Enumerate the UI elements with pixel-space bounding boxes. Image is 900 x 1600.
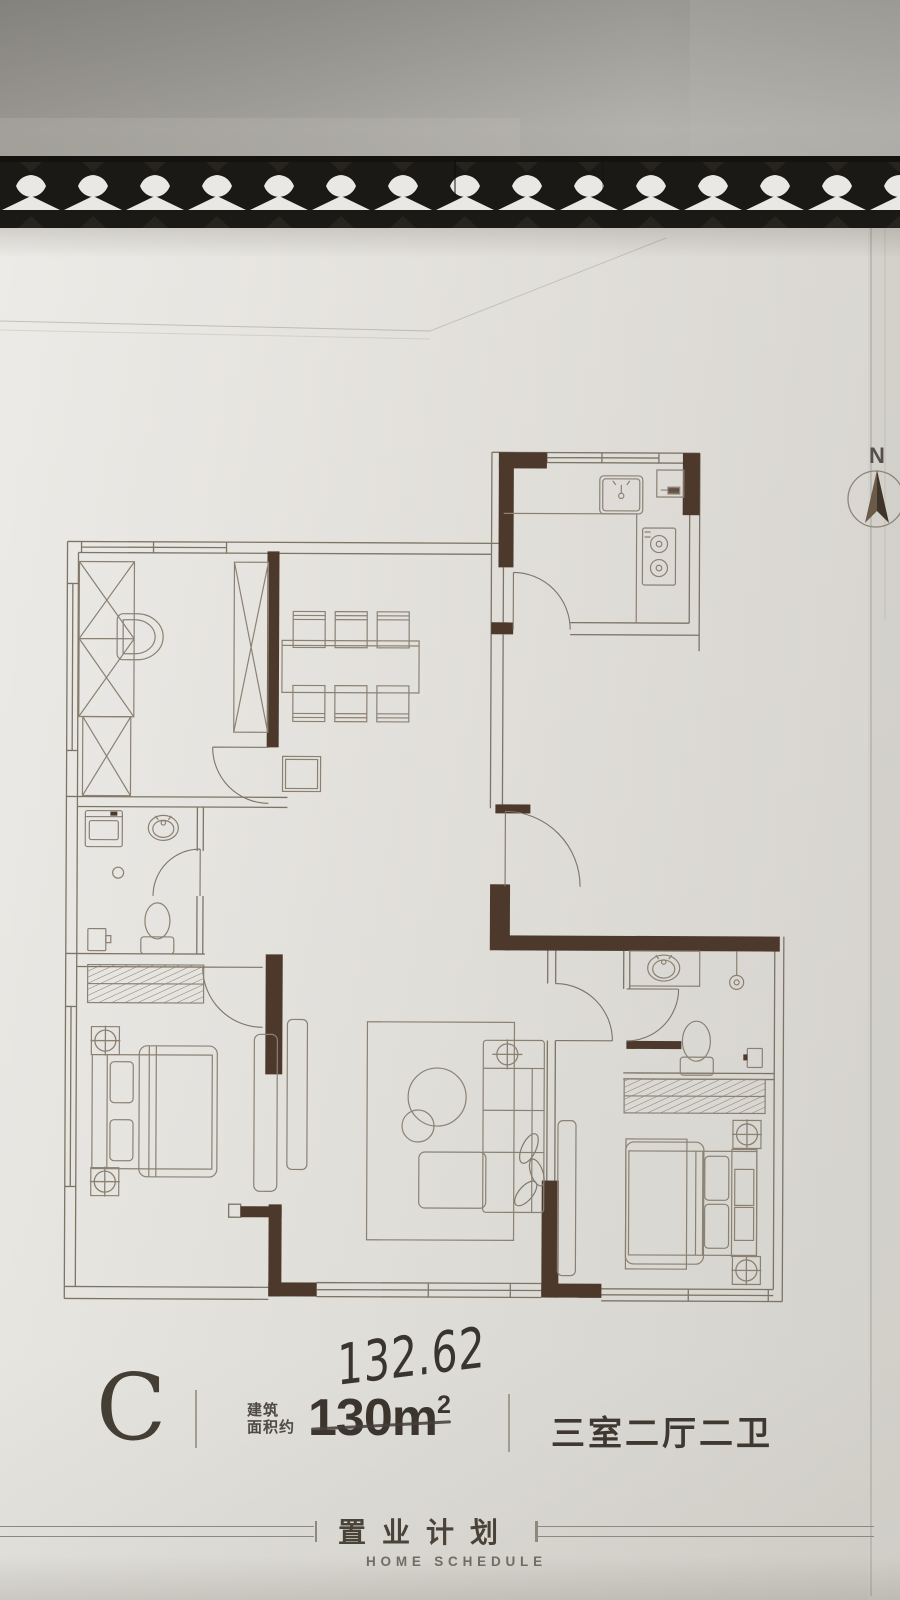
shelf-grate xyxy=(0,156,900,258)
wardrobe-hatch-icon xyxy=(88,965,204,1004)
poster-paper xyxy=(0,224,900,1600)
north-label: N xyxy=(869,443,885,468)
photo-of-floor-plan-poster: N C 建筑 面积约 130m2 132.62 三室二厅二卫 置业计划 HOME… xyxy=(0,0,900,1600)
wardrobe-hatch-icon xyxy=(624,1079,765,1114)
